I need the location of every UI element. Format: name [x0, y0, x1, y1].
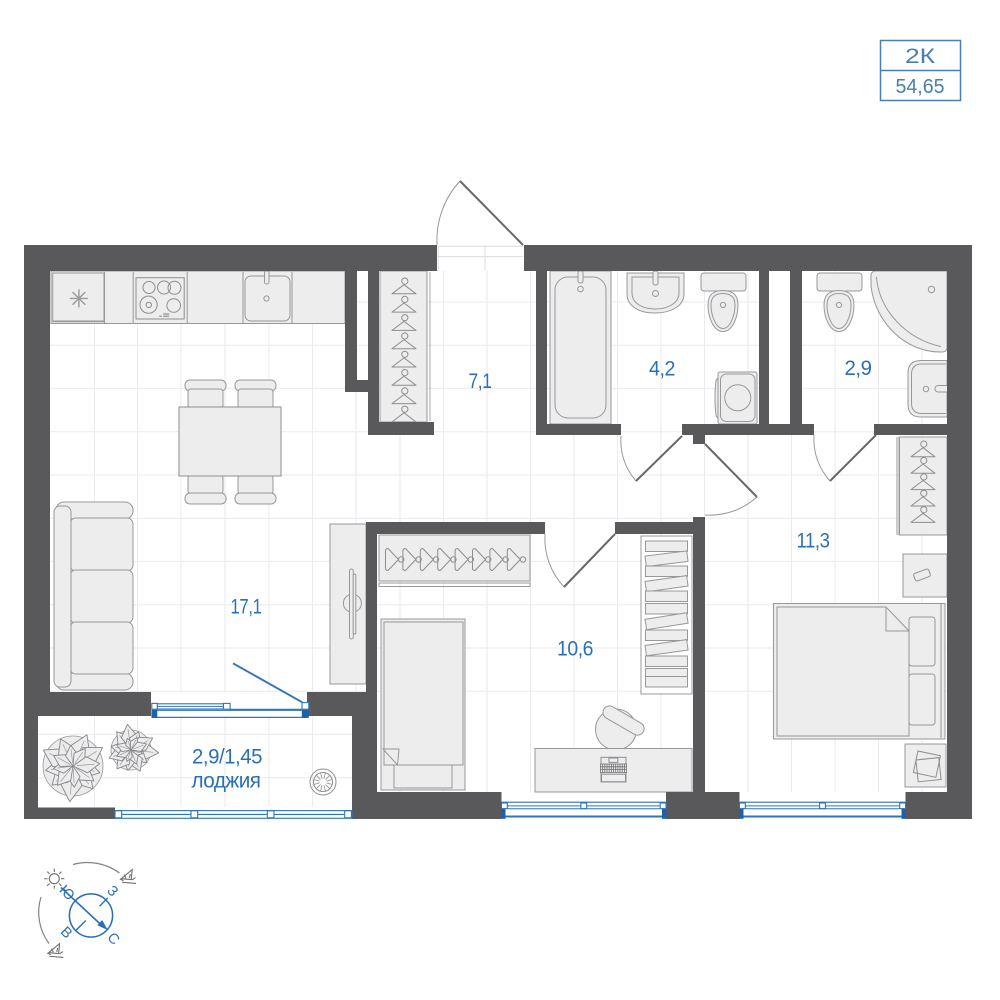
svg-text:2К: 2К: [905, 44, 936, 68]
svg-text:54,65: 54,65: [896, 75, 945, 98]
svg-text:10,6: 10,6: [557, 637, 593, 661]
svg-text:4,2: 4,2: [649, 357, 675, 381]
svg-text:7,1: 7,1: [469, 369, 492, 393]
svg-text:2,9: 2,9: [845, 356, 872, 380]
svg-text:11,3: 11,3: [797, 529, 830, 553]
svg-text:17,1: 17,1: [231, 595, 262, 619]
svg-text:2,9/1,45: 2,9/1,45: [192, 746, 262, 769]
svg-text:лоджия: лоджия: [192, 770, 261, 793]
